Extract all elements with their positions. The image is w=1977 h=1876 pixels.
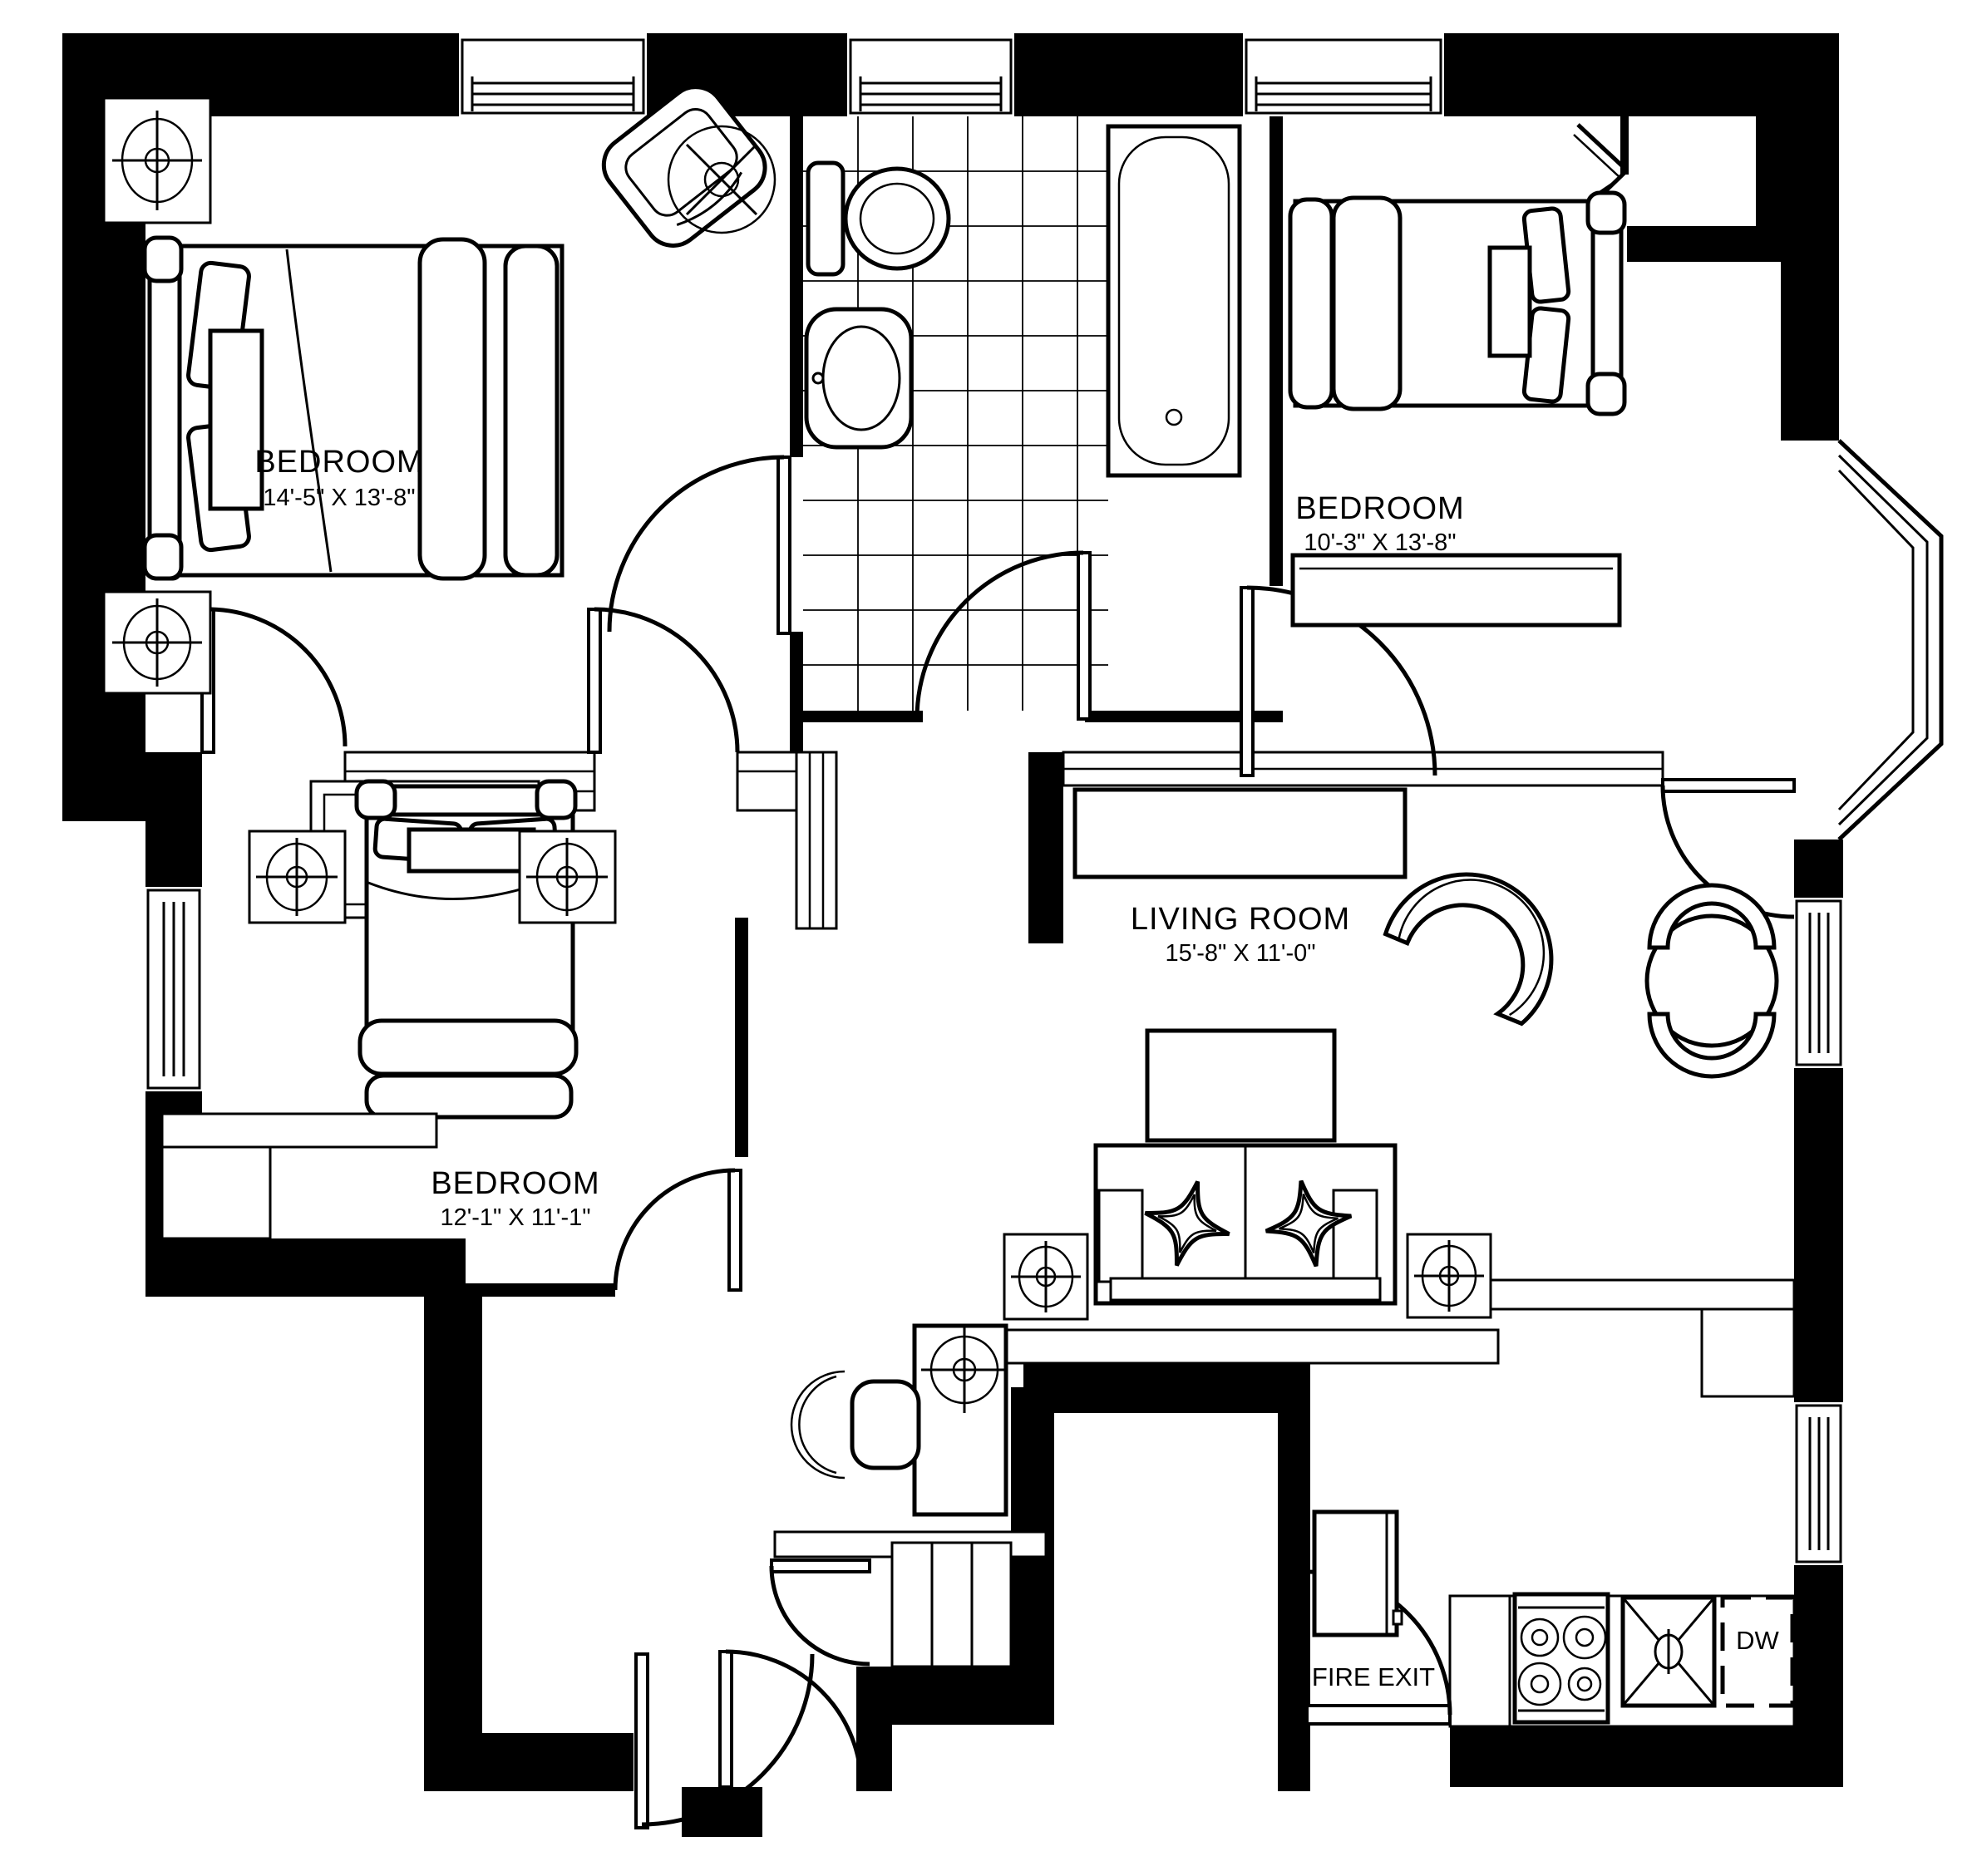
dresser-3	[162, 1114, 436, 1238]
bay-window	[1839, 441, 1941, 840]
bedroom1-hall-door	[609, 457, 790, 633]
dresser-2	[1293, 555, 1620, 625]
desk-chair	[791, 1371, 919, 1478]
floor-plan: DW	[0, 0, 1977, 1876]
window-top-3	[1246, 40, 1441, 113]
pedestal-sink	[806, 309, 911, 447]
window-top-2	[850, 40, 1011, 113]
fire-exit-label: FIRE EXIT	[1312, 1662, 1435, 1691]
bed-1	[145, 238, 562, 579]
bedroom3-dims: 12'-1" X 11'-1"	[440, 1204, 590, 1231]
living-room-label: LIVING ROOM	[1131, 902, 1350, 937]
living-room-furniture	[1075, 790, 1580, 1303]
half-wall-shelf	[939, 1330, 1498, 1363]
bedroom3-door	[615, 1170, 741, 1290]
bedroom1-door-left	[202, 609, 345, 752]
bedroom2-label: BEDROOM	[1295, 491, 1464, 526]
exterior-exit-door	[720, 1652, 861, 1787]
window-top-1	[462, 40, 643, 113]
living-room-dims: 15'-8" X 11'-0"	[1165, 940, 1315, 967]
bathroom	[803, 116, 1240, 711]
sofa	[1096, 1145, 1395, 1303]
ceiling-light-icon	[104, 98, 210, 223]
window-left	[148, 890, 200, 1088]
bathtub	[1108, 126, 1240, 475]
hall-desk-area	[791, 1326, 1008, 1514]
tv-console	[1075, 790, 1405, 877]
stove	[1515, 1594, 1608, 1722]
bedroom2-dims: 10'-3" X 13'-8"	[1304, 529, 1456, 556]
ceiling-light-icon	[104, 592, 210, 693]
bedroom3-label: BEDROOM	[431, 1166, 599, 1201]
ceiling-light-icon	[249, 831, 345, 923]
fridge	[1314, 1512, 1402, 1635]
ceiling-light-icon	[1408, 1234, 1491, 1317]
bedroom1-dims: 14'-5" X 13'-8"	[263, 485, 415, 511]
desk	[915, 1326, 1008, 1514]
dishwasher-label: DW	[1736, 1626, 1779, 1655]
ceiling-light-icon	[1004, 1234, 1087, 1319]
bed-2	[1290, 193, 1624, 414]
bathroom-door	[917, 553, 1090, 719]
dining-area	[1447, 885, 1794, 1396]
bedroom1-furniture	[145, 76, 777, 579]
coffee-table	[1147, 1031, 1334, 1140]
stair-hall-door	[772, 1560, 870, 1664]
toilet	[808, 163, 949, 274]
bedroom1-label: BEDROOM	[254, 445, 423, 480]
floor-plan-drawing: DW	[0, 0, 1977, 1876]
dishwasher: DW	[1723, 1598, 1792, 1706]
ceiling-light-icon	[520, 831, 615, 923]
window-right-2	[1797, 1406, 1841, 1562]
kitchen: DW	[1314, 1512, 1794, 1726]
kitchen-sink	[1623, 1598, 1714, 1706]
bedroom2-furniture	[1290, 193, 1624, 625]
stairs	[892, 1543, 1011, 1667]
window-right-1	[1797, 901, 1841, 1065]
shelf-wall	[796, 752, 836, 928]
